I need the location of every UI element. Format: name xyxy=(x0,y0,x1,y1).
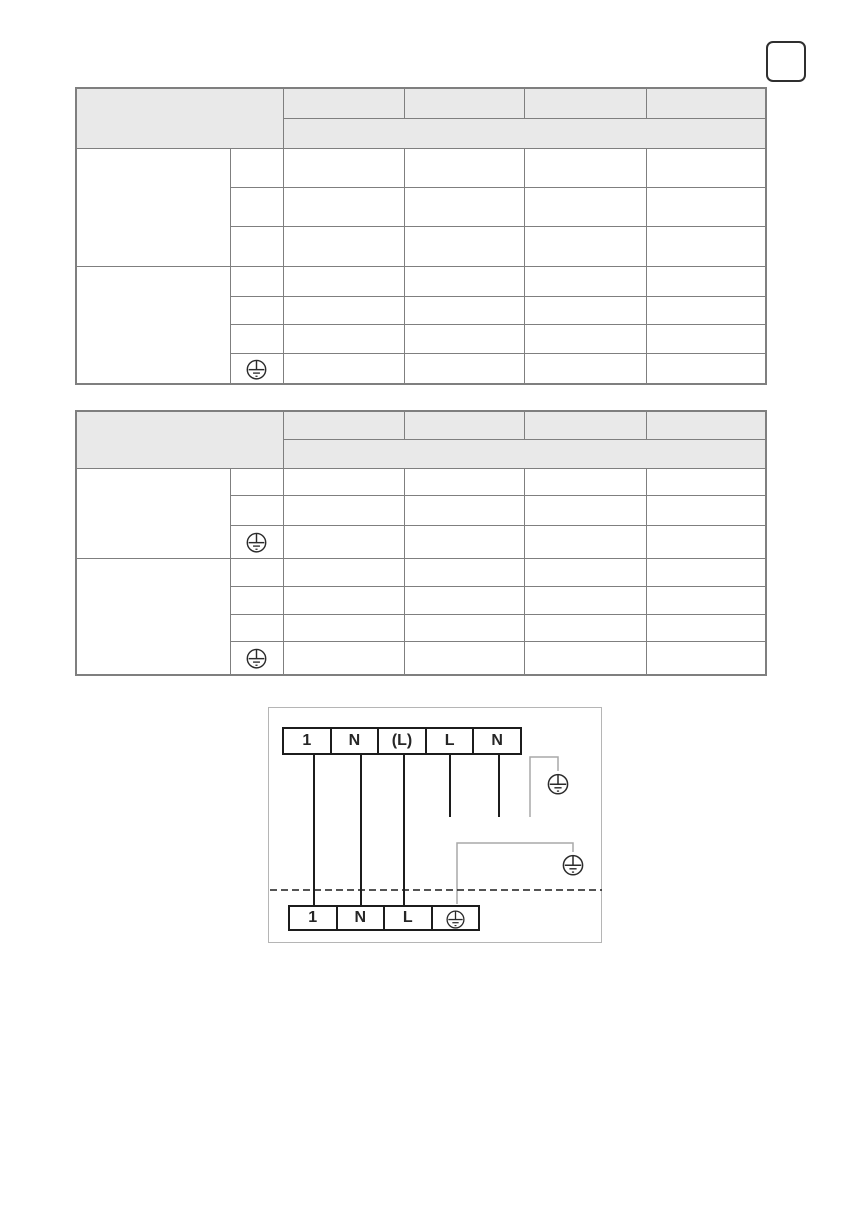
header-cell xyxy=(404,88,524,118)
header-cell xyxy=(524,88,646,118)
data-cell xyxy=(283,525,404,558)
page-number-box xyxy=(766,41,806,82)
data-cell xyxy=(404,525,524,558)
terminal-block-bottom: 1 N L xyxy=(288,905,480,931)
data-cell xyxy=(646,266,766,296)
row-key-cell xyxy=(230,614,283,641)
group-label-cell xyxy=(76,468,230,558)
header-cell xyxy=(524,411,646,439)
data-cell xyxy=(524,296,646,324)
group-label-cell xyxy=(76,148,230,266)
table-row xyxy=(76,411,766,439)
data-cell xyxy=(404,324,524,353)
header-subrow-cell xyxy=(283,118,766,148)
row-key-cell xyxy=(230,148,283,187)
earth-symbol-cell xyxy=(230,641,283,675)
data-cell xyxy=(404,586,524,614)
data-cell xyxy=(646,525,766,558)
data-cell xyxy=(404,296,524,324)
row-key-cell xyxy=(230,324,283,353)
terminal-bottom-n: N xyxy=(336,907,384,929)
table-row xyxy=(76,148,766,187)
data-cell xyxy=(283,266,404,296)
data-cell xyxy=(283,353,404,384)
protective-earth-icon xyxy=(245,357,268,380)
row-key-cell xyxy=(230,187,283,226)
data-cell xyxy=(524,586,646,614)
earth-symbol-cell xyxy=(230,353,283,384)
row-key-cell xyxy=(230,468,283,495)
data-cell xyxy=(404,495,524,525)
data-cell xyxy=(404,641,524,675)
data-cell xyxy=(404,266,524,296)
data-cell xyxy=(646,586,766,614)
data-cell xyxy=(524,525,646,558)
data-cell xyxy=(404,468,524,495)
data-cell xyxy=(646,296,766,324)
data-cell xyxy=(404,353,524,384)
group-label-cell xyxy=(76,558,230,675)
header-cell xyxy=(646,88,766,118)
row-key-cell xyxy=(230,266,283,296)
header-left-cell xyxy=(76,411,283,468)
data-cell xyxy=(524,468,646,495)
data-cell xyxy=(524,148,646,187)
data-cell xyxy=(646,641,766,675)
row-key-cell xyxy=(230,586,283,614)
data-cell xyxy=(404,614,524,641)
data-cell xyxy=(283,187,404,226)
wiring-diagram: 1 N (L) L N 1 N L xyxy=(268,707,602,943)
group-label-cell xyxy=(76,266,230,384)
header-subrow-cell xyxy=(283,439,766,468)
data-cell xyxy=(404,187,524,226)
data-cell xyxy=(646,226,766,266)
data-cell xyxy=(524,187,646,226)
protective-earth-icon xyxy=(245,646,268,669)
protective-earth-icon xyxy=(563,856,582,875)
earth-wire-lower xyxy=(457,843,573,904)
data-cell xyxy=(646,353,766,384)
data-cell xyxy=(283,586,404,614)
terminal-top-l-paren: (L) xyxy=(377,729,425,753)
row-key-cell xyxy=(230,296,283,324)
data-cell xyxy=(646,468,766,495)
data-cell xyxy=(646,495,766,525)
row-key-cell xyxy=(230,495,283,525)
data-cell xyxy=(524,353,646,384)
header-cell xyxy=(404,411,524,439)
data-cell xyxy=(646,324,766,353)
data-cell xyxy=(404,558,524,586)
terminal-top-n: N xyxy=(330,729,378,753)
data-cell xyxy=(283,468,404,495)
earth-wire-upper xyxy=(530,757,558,817)
terminal-bottom-1: 1 xyxy=(290,907,336,929)
data-cell xyxy=(283,641,404,675)
data-cell xyxy=(646,614,766,641)
header-cell xyxy=(283,88,404,118)
protective-earth-icon xyxy=(245,530,268,553)
terminal-bottom-earth xyxy=(431,907,479,929)
data-cell xyxy=(524,495,646,525)
data-cell xyxy=(524,324,646,353)
header-left-cell xyxy=(76,88,283,148)
data-cell xyxy=(283,226,404,266)
data-cell xyxy=(283,324,404,353)
data-cell xyxy=(404,148,524,187)
protective-earth-icon xyxy=(445,908,466,929)
data-cell xyxy=(524,558,646,586)
spec-table-lower xyxy=(75,410,767,676)
table-row xyxy=(76,558,766,586)
row-key-cell xyxy=(230,558,283,586)
data-cell xyxy=(524,641,646,675)
protective-earth-icon xyxy=(548,775,567,794)
table-row xyxy=(76,88,766,118)
data-cell xyxy=(646,148,766,187)
data-cell xyxy=(283,614,404,641)
data-cell xyxy=(283,148,404,187)
terminal-top-1: 1 xyxy=(284,729,330,753)
header-cell xyxy=(283,411,404,439)
terminal-bottom-l: L xyxy=(383,907,431,929)
earth-symbol-cell xyxy=(230,525,283,558)
terminal-block-top: 1 N (L) L N xyxy=(282,727,522,755)
terminal-top-l: L xyxy=(425,729,473,753)
table-row xyxy=(76,468,766,495)
data-cell xyxy=(283,558,404,586)
data-cell xyxy=(283,495,404,525)
data-cell xyxy=(404,226,524,266)
data-cell xyxy=(524,614,646,641)
row-key-cell xyxy=(230,226,283,266)
header-cell xyxy=(646,411,766,439)
data-cell xyxy=(524,226,646,266)
data-cell xyxy=(524,266,646,296)
conductor-wires xyxy=(314,755,499,905)
data-cell xyxy=(646,558,766,586)
spec-table-upper xyxy=(75,87,767,385)
table-row xyxy=(76,266,766,296)
data-cell xyxy=(646,187,766,226)
data-cell xyxy=(283,296,404,324)
terminal-top-n2: N xyxy=(472,729,520,753)
